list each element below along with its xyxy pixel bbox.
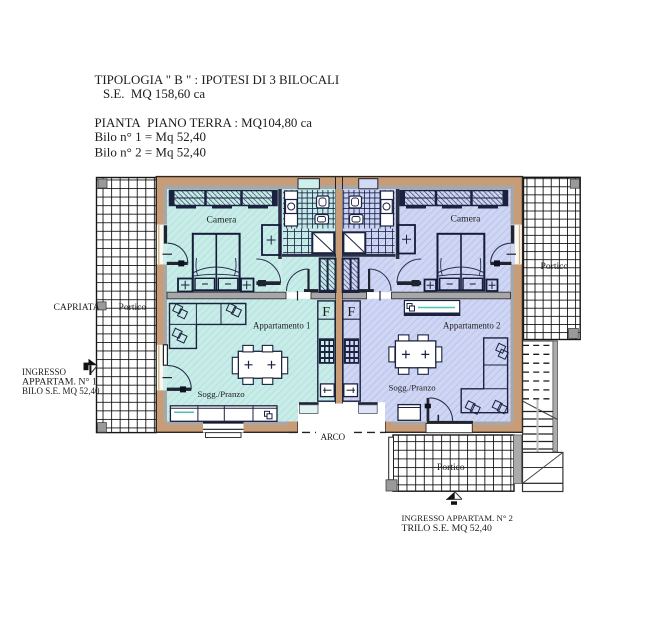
svg-text:Sogg./Pranzo: Sogg./Pranzo [198, 389, 246, 399]
svg-text:Camera: Camera [207, 215, 238, 226]
svg-text:F: F [322, 305, 330, 320]
svg-text:INGRESSO APPARTAM. N° 2: INGRESSO APPARTAM. N° 2 [402, 513, 513, 523]
svg-text:Sogg./Pranzo: Sogg./Pranzo [389, 383, 437, 393]
svg-text:CAPRIATA: CAPRIATA [54, 302, 100, 313]
svg-text:Bilo n° 2 = Mq 52,40: Bilo n° 2 = Mq 52,40 [95, 145, 206, 160]
svg-text:PIANTA PIANO TERRA : MQ104,80: PIANTA PIANO TERRA : MQ104,80 ca [95, 116, 313, 130]
svg-text:Portico: Portico [437, 462, 465, 473]
svg-text:Portico: Portico [541, 261, 569, 272]
svg-text:INGRESSO: INGRESSO [22, 367, 67, 377]
svg-text:Appartamento 1: Appartamento 1 [253, 321, 310, 331]
svg-text:TIPOLOGIA " B " : IPOTESI DI 3: TIPOLOGIA " B " : IPOTESI DI 3 BILOCALI [95, 73, 340, 87]
svg-text:Portico: Portico [119, 302, 147, 313]
svg-text:Camera: Camera [451, 214, 482, 225]
svg-text:BILO S.E. MQ 52,40: BILO S.E. MQ 52,40 [22, 386, 100, 396]
svg-text:ARCO: ARCO [321, 432, 346, 442]
svg-text:Bilo n° 1 = Mq 52,40: Bilo n° 1 = Mq 52,40 [95, 129, 206, 144]
svg-text:TRILO S.E. MQ 52,40: TRILO S.E. MQ 52,40 [402, 523, 492, 534]
svg-text:S.E. MQ 158,60 ca: S.E. MQ 158,60 ca [103, 87, 205, 101]
svg-text:F: F [347, 305, 355, 320]
svg-text:Appartamento 2: Appartamento 2 [443, 321, 500, 331]
